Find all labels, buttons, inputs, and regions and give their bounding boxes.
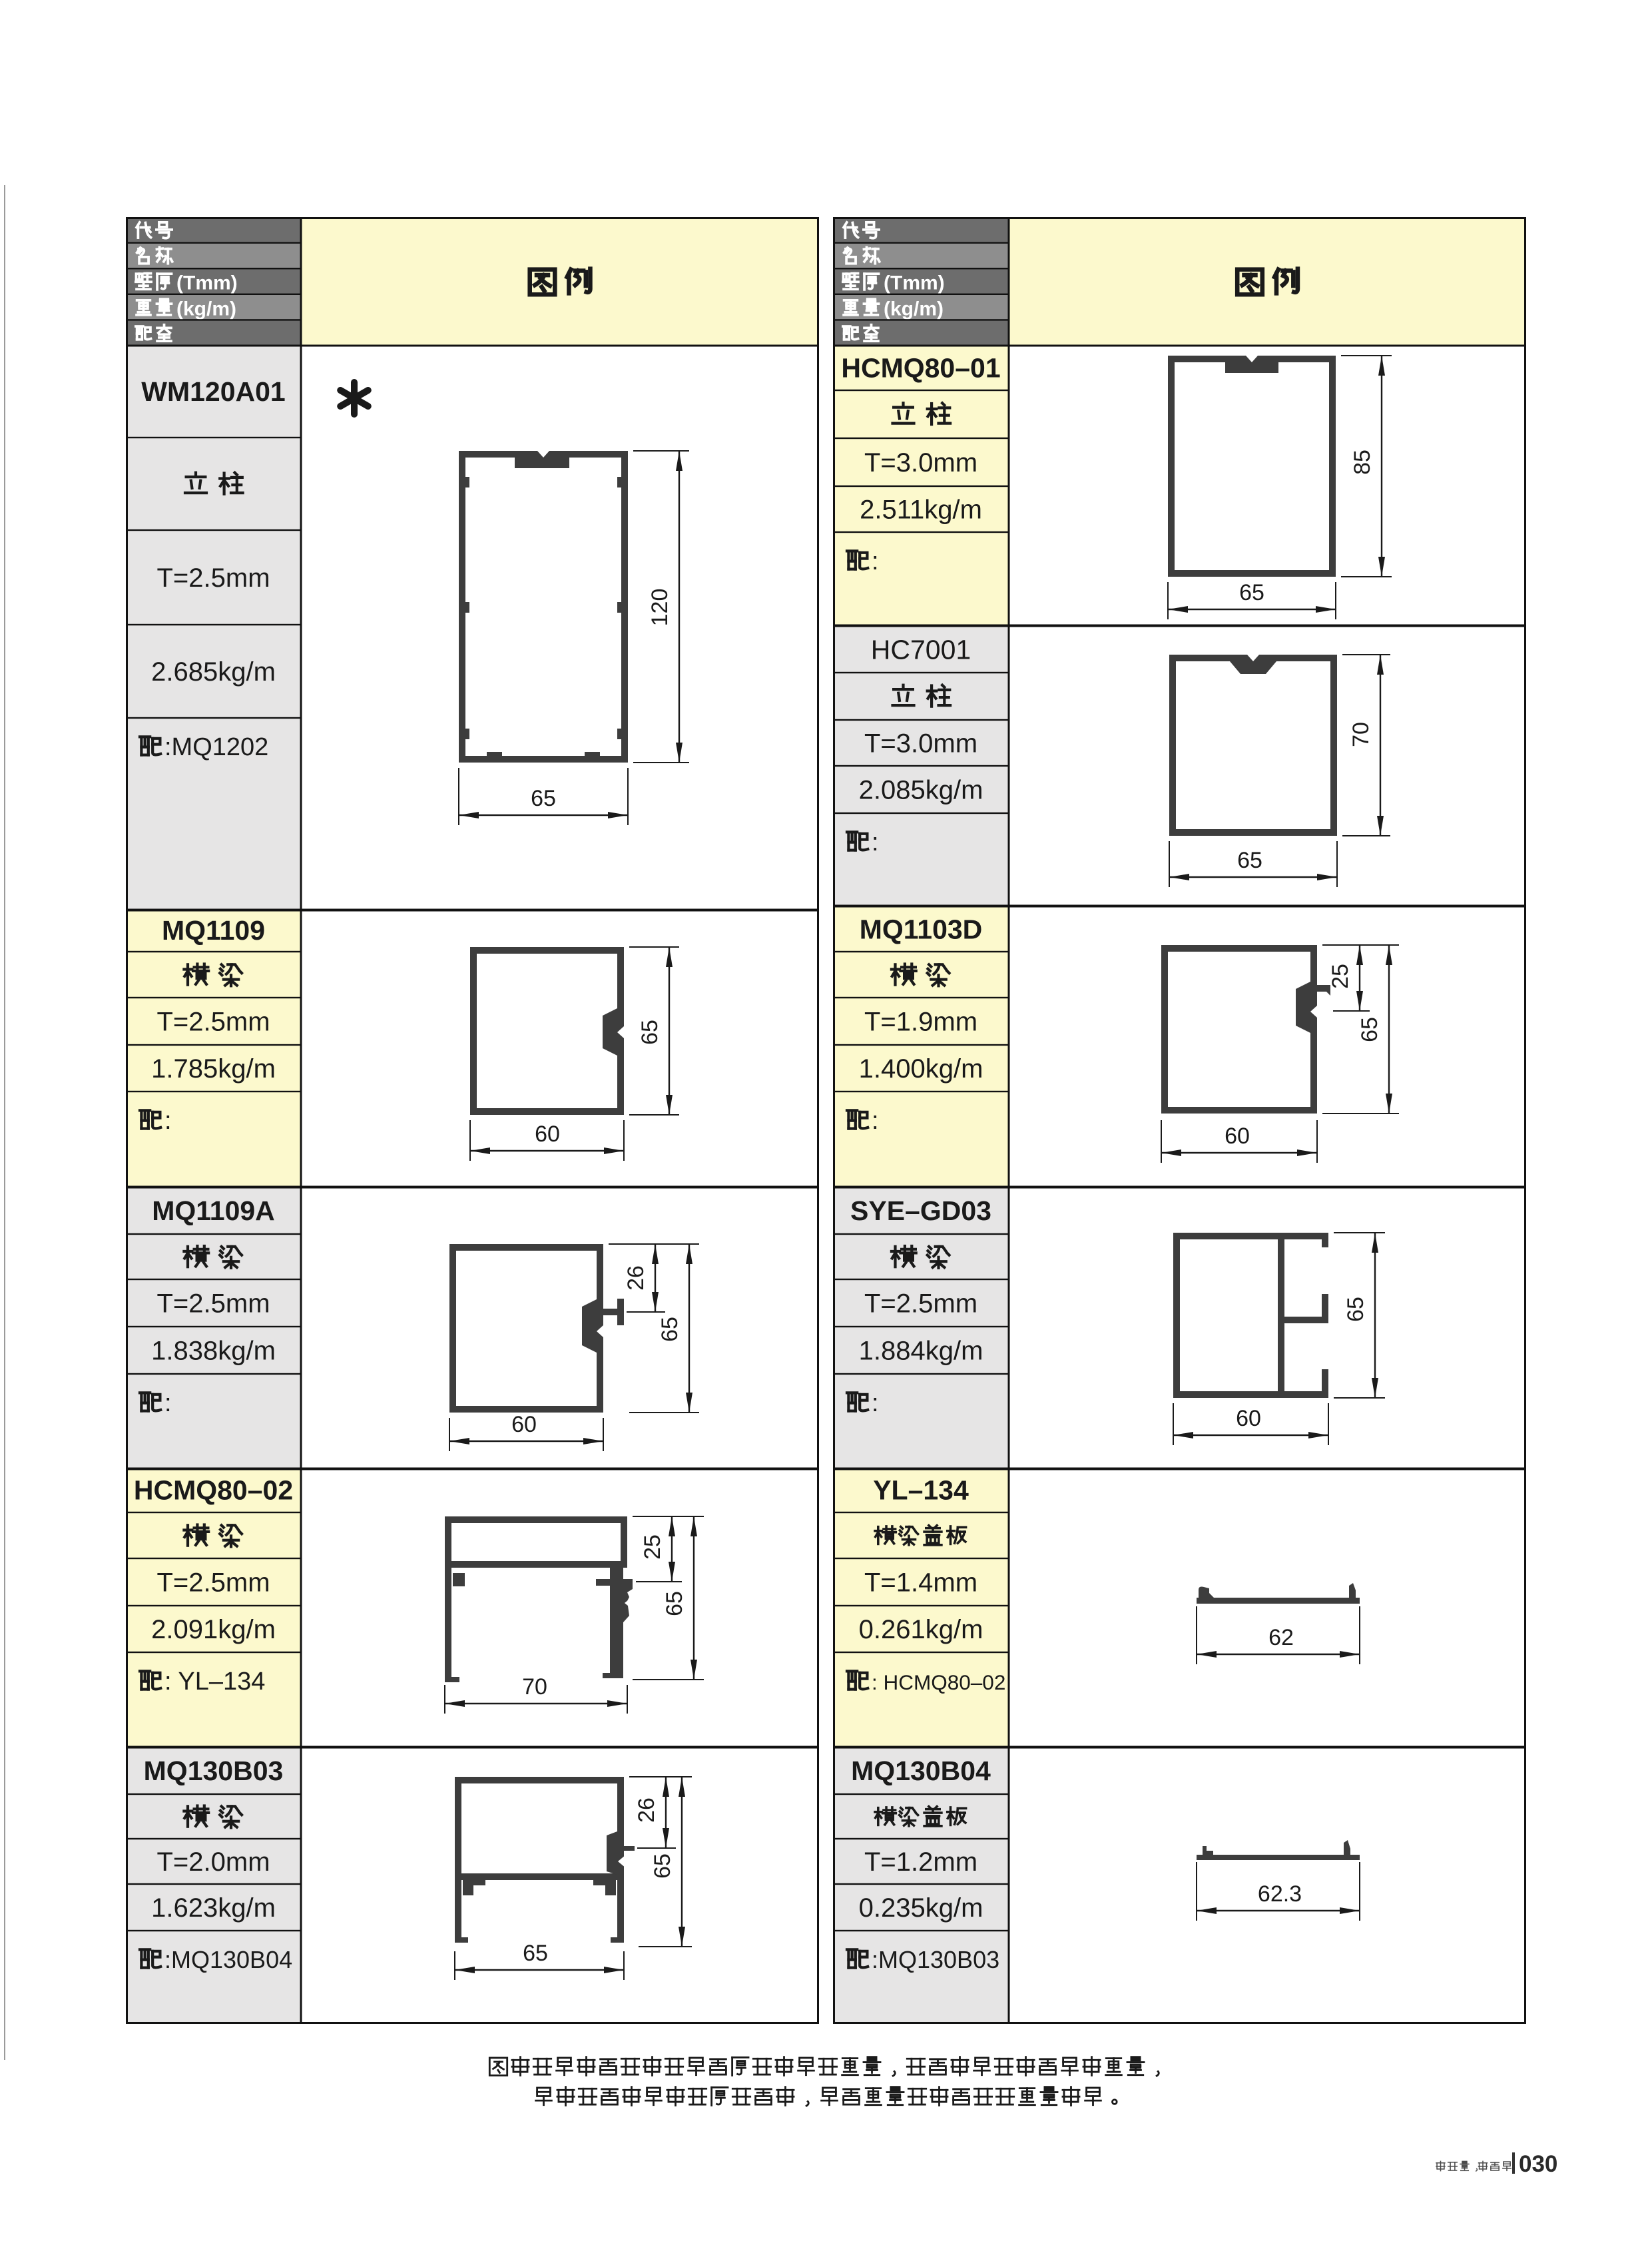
svg-text:65: 65 [1237, 848, 1262, 873]
svg-text:T=3.0mm: T=3.0mm [864, 448, 977, 478]
svg-text:T=1.9mm: T=1.9mm [864, 1008, 977, 1037]
svg-text:60: 60 [535, 1121, 560, 1147]
svg-text::: : [164, 1389, 172, 1417]
svg-text:(kg/m): (kg/m) [176, 298, 236, 320]
svg-text:2.085kg/m: 2.085kg/m [859, 776, 983, 805]
svg-text::: : [872, 547, 879, 575]
svg-text:T=2.5mm: T=2.5mm [156, 1568, 270, 1598]
svg-text:60: 60 [511, 1412, 537, 1437]
svg-text:62.3: 62.3 [1258, 1881, 1302, 1907]
svg-text:25: 25 [1328, 964, 1353, 989]
svg-text::: : [872, 1107, 879, 1135]
svg-text:MQ130B03: MQ130B03 [144, 1756, 284, 1786]
svg-text:: YL–134: : YL–134 [164, 1668, 265, 1696]
svg-text:70: 70 [522, 1674, 547, 1700]
svg-text:SYE–GD03: SYE–GD03 [850, 1195, 991, 1226]
svg-text:MQ1109: MQ1109 [162, 915, 265, 946]
svg-text:T=2.5mm: T=2.5mm [156, 563, 270, 593]
svg-text:60: 60 [1225, 1123, 1250, 1149]
svg-text:(kg/m): (kg/m) [884, 298, 944, 320]
svg-text:: HCMQ80–02: : HCMQ80–02 [872, 1670, 1005, 1694]
svg-text:T=3.0mm: T=3.0mm [864, 729, 977, 759]
svg-text:2.091kg/m: 2.091kg/m [151, 1615, 276, 1644]
svg-text:MQ1109A: MQ1109A [152, 1195, 275, 1226]
svg-text::: : [164, 1107, 172, 1135]
svg-text:65: 65 [1343, 1297, 1368, 1322]
svg-text:MQ1103D: MQ1103D [860, 914, 983, 945]
svg-text::MQ130B04: :MQ130B04 [164, 1946, 292, 1973]
svg-text::: : [872, 1389, 879, 1417]
svg-text:(Tmm): (Tmm) [176, 272, 238, 294]
svg-text:030: 030 [1519, 2151, 1557, 2177]
svg-text:65: 65 [531, 786, 556, 811]
svg-text:MQ130B04: MQ130B04 [851, 1756, 991, 1786]
svg-text:65: 65 [1357, 1017, 1382, 1042]
svg-text:62: 62 [1268, 1625, 1294, 1650]
svg-text:T=1.4mm: T=1.4mm [864, 1568, 977, 1598]
svg-text:70: 70 [1348, 722, 1374, 747]
svg-text::MQ1202: :MQ1202 [164, 733, 268, 761]
svg-text:HCMQ80–01: HCMQ80–01 [841, 353, 1000, 384]
svg-text:1.838kg/m: 1.838kg/m [151, 1337, 276, 1366]
svg-text:65: 65 [662, 1591, 687, 1616]
svg-text:60: 60 [1236, 1406, 1261, 1431]
svg-text:65: 65 [637, 1020, 663, 1045]
svg-text::MQ130B03: :MQ130B03 [872, 1946, 999, 1973]
svg-text:25: 25 [640, 1534, 665, 1560]
svg-text::: : [872, 828, 879, 856]
svg-text:1.785kg/m: 1.785kg/m [151, 1054, 276, 1084]
svg-text:65: 65 [1239, 580, 1264, 605]
svg-text:120: 120 [647, 589, 673, 627]
svg-text:HCMQ80–02: HCMQ80–02 [134, 1475, 293, 1506]
svg-text:0.261kg/m: 0.261kg/m [859, 1615, 983, 1644]
svg-text:2.511kg/m: 2.511kg/m [860, 495, 982, 525]
svg-text:1.623kg/m: 1.623kg/m [151, 1893, 276, 1923]
svg-text:26: 26 [623, 1265, 649, 1291]
svg-text:1.400kg/m: 1.400kg/m [859, 1054, 983, 1084]
svg-text:HC7001: HC7001 [871, 635, 971, 665]
svg-text:65: 65 [650, 1853, 675, 1879]
svg-text:T=2.5mm: T=2.5mm [864, 1289, 977, 1319]
svg-text:0.235kg/m: 0.235kg/m [859, 1893, 983, 1923]
svg-text:65: 65 [523, 1941, 548, 1966]
svg-text:65: 65 [657, 1317, 683, 1342]
svg-text:T=2.0mm: T=2.0mm [156, 1847, 270, 1877]
svg-text:2.685kg/m: 2.685kg/m [151, 657, 276, 687]
svg-text:YL–134: YL–134 [873, 1475, 969, 1506]
svg-text:T=2.5mm: T=2.5mm [156, 1008, 270, 1037]
svg-text:85: 85 [1350, 450, 1375, 475]
svg-text:WM120A01: WM120A01 [141, 376, 285, 407]
svg-text:1.884kg/m: 1.884kg/m [859, 1337, 983, 1366]
svg-text:T=2.5mm: T=2.5mm [156, 1289, 270, 1319]
svg-text:(Tmm): (Tmm) [884, 272, 945, 294]
svg-text:T=1.2mm: T=1.2mm [864, 1847, 977, 1877]
svg-text:26: 26 [634, 1797, 659, 1823]
